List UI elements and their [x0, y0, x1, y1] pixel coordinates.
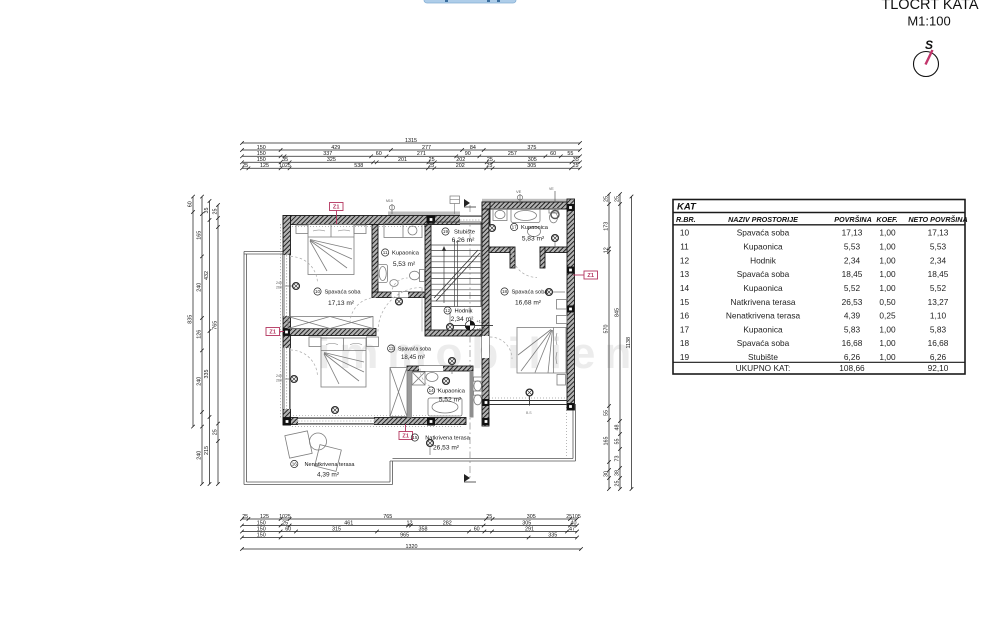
- svg-text:11: 11: [383, 250, 388, 255]
- svg-text:1,00: 1,00: [879, 324, 896, 334]
- svg-text:25: 25: [486, 163, 492, 169]
- svg-text:17,13: 17,13: [842, 228, 863, 238]
- svg-text:VE: VE: [516, 189, 522, 194]
- svg-text:2,34: 2,34: [930, 255, 947, 265]
- svg-text:60: 60: [285, 526, 291, 532]
- svg-text:277: 277: [422, 145, 431, 151]
- svg-text:90: 90: [465, 151, 471, 157]
- svg-text:48: 48: [614, 425, 620, 431]
- svg-text:Z1: Z1: [402, 434, 409, 440]
- svg-text:Hodnik: Hodnik: [750, 255, 777, 265]
- svg-text:10: 10: [315, 289, 321, 294]
- svg-text:1,00: 1,00: [879, 352, 896, 362]
- svg-text:325: 325: [327, 157, 336, 163]
- svg-text:25: 25: [603, 196, 609, 202]
- svg-text:1,00: 1,00: [879, 283, 896, 293]
- svg-text:5,83: 5,83: [930, 324, 947, 334]
- svg-text:173: 173: [603, 222, 609, 231]
- svg-text:1,00: 1,00: [879, 241, 896, 251]
- svg-text:Spavaća soba: Spavaća soba: [324, 290, 361, 296]
- svg-text:Spavaća soba: Spavaća soba: [737, 269, 790, 279]
- svg-text:18: 18: [680, 338, 690, 348]
- svg-text:60: 60: [376, 151, 382, 157]
- svg-text:12: 12: [445, 308, 451, 313]
- svg-text:13: 13: [389, 346, 395, 351]
- svg-text:240: 240: [197, 283, 203, 292]
- svg-text:NAZIV PROSTORIJE: NAZIV PROSTORIJE: [728, 215, 798, 224]
- svg-text:0,50: 0,50: [879, 297, 896, 307]
- svg-text:15: 15: [680, 297, 690, 307]
- svg-text:VE: VE: [549, 187, 554, 191]
- svg-text:6,26: 6,26: [930, 352, 947, 362]
- svg-text:16,68: 16,68: [842, 338, 863, 348]
- svg-text:538: 538: [354, 163, 363, 169]
- svg-text:KAT: KAT: [677, 202, 697, 213]
- svg-text:15: 15: [412, 435, 418, 440]
- svg-text:R.BR.: R.BR.: [676, 215, 696, 224]
- svg-text:6,26: 6,26: [844, 352, 861, 362]
- svg-text:1138: 1138: [626, 337, 632, 349]
- svg-text:Kupaonica: Kupaonica: [392, 251, 420, 257]
- svg-text:432: 432: [204, 271, 210, 280]
- svg-text:17,13 m²: 17,13 m²: [328, 300, 355, 307]
- svg-text:240: 240: [197, 451, 203, 460]
- svg-text:257: 257: [508, 151, 517, 157]
- svg-text:18,45: 18,45: [842, 269, 863, 279]
- svg-text:16: 16: [292, 462, 298, 467]
- svg-text:Kupaonica: Kupaonica: [438, 389, 466, 395]
- svg-text:335: 335: [548, 532, 557, 538]
- svg-text:108,66: 108,66: [839, 363, 865, 373]
- svg-text:16,68 m²: 16,68 m²: [515, 299, 542, 306]
- svg-text:4,39: 4,39: [844, 311, 861, 321]
- svg-text:KOEF.: KOEF.: [876, 215, 897, 224]
- svg-text:B.S: B.S: [526, 411, 532, 415]
- svg-text:4,39 m²: 4,39 m²: [317, 471, 340, 478]
- svg-text:5,52: 5,52: [930, 283, 947, 293]
- svg-text:Hodnik: Hodnik: [454, 309, 472, 315]
- svg-text:38: 38: [614, 470, 620, 476]
- svg-text:84: 84: [470, 145, 476, 151]
- svg-text:Spavaća soba: Spavaća soba: [511, 290, 548, 296]
- svg-text:18,45: 18,45: [928, 269, 949, 279]
- svg-text:5,53: 5,53: [930, 241, 947, 251]
- svg-text:5,52: 5,52: [844, 283, 861, 293]
- svg-text:60: 60: [550, 151, 556, 157]
- svg-text:14: 14: [680, 283, 690, 293]
- svg-text:201: 201: [398, 157, 407, 163]
- svg-text:765: 765: [213, 321, 219, 330]
- svg-text:55: 55: [614, 439, 620, 445]
- svg-text:25: 25: [213, 209, 219, 215]
- svg-text:17,13: 17,13: [928, 228, 949, 238]
- svg-text:358: 358: [419, 526, 428, 532]
- svg-text:12: 12: [680, 255, 690, 265]
- svg-text:26,53: 26,53: [842, 297, 863, 307]
- svg-text:NETO POVRŠINA: NETO POVRŠINA: [908, 215, 967, 224]
- svg-text:25: 25: [614, 481, 620, 487]
- svg-text:25: 25: [242, 514, 248, 520]
- svg-text:13,27: 13,27: [928, 297, 949, 307]
- svg-text:M1:100: M1:100: [907, 14, 950, 29]
- svg-text:965: 965: [400, 532, 409, 538]
- svg-text:25: 25: [614, 196, 620, 202]
- svg-text:92,10: 92,10: [928, 363, 949, 373]
- svg-text:845: 845: [614, 308, 620, 317]
- svg-text:17: 17: [512, 225, 518, 230]
- svg-text:M10: M10: [386, 199, 393, 203]
- svg-text:19: 19: [680, 352, 690, 362]
- svg-text:315: 315: [332, 526, 341, 532]
- svg-text:Natkrivena terasa: Natkrivena terasa: [425, 436, 470, 442]
- svg-text:26,53 m²: 26,53 m²: [433, 444, 460, 451]
- svg-text:150: 150: [257, 145, 266, 151]
- svg-text:1,00: 1,00: [879, 269, 896, 279]
- svg-text:5,52 m²: 5,52 m²: [439, 396, 462, 403]
- svg-text:Nenatkrivena terasa: Nenatkrivena terasa: [304, 462, 355, 468]
- svg-text:Z1: Z1: [333, 205, 340, 211]
- svg-text:125: 125: [260, 163, 269, 169]
- svg-text:25: 25: [573, 163, 579, 169]
- svg-text:260: 260: [276, 379, 282, 383]
- svg-text:240: 240: [276, 374, 282, 378]
- svg-text:260: 260: [276, 286, 282, 290]
- svg-text:282: 282: [443, 520, 452, 526]
- svg-text:165: 165: [603, 437, 609, 446]
- svg-text:Spavaća soba: Spavaća soba: [737, 338, 790, 348]
- svg-text:35: 35: [204, 208, 210, 214]
- svg-text:0,25: 0,25: [879, 311, 896, 321]
- svg-text:Z1: Z1: [269, 330, 276, 336]
- svg-text:1025: 1025: [279, 163, 291, 169]
- svg-text:73: 73: [614, 456, 620, 462]
- svg-text:335: 335: [204, 370, 210, 379]
- svg-text:6,26 m²: 6,26 m²: [452, 237, 475, 244]
- svg-text:10: 10: [680, 228, 690, 238]
- svg-text:13: 13: [680, 269, 690, 279]
- svg-text:765: 765: [383, 514, 392, 520]
- svg-text:1320: 1320: [406, 544, 418, 550]
- svg-text:+1,90: +1,90: [477, 320, 487, 324]
- svg-text:125: 125: [260, 514, 269, 520]
- svg-text:Kupaonica: Kupaonica: [743, 324, 783, 334]
- svg-text:16: 16: [680, 311, 690, 321]
- svg-text:1,00: 1,00: [879, 228, 896, 238]
- svg-text:POVRŠINA: POVRŠINA: [834, 215, 872, 224]
- svg-text:60: 60: [188, 201, 194, 207]
- svg-text:25105: 25105: [566, 514, 581, 520]
- svg-text:375: 375: [527, 145, 536, 151]
- svg-text:5,53 m²: 5,53 m²: [393, 261, 416, 268]
- svg-text:271: 271: [417, 151, 426, 157]
- svg-text:Stubište: Stubište: [454, 230, 475, 236]
- svg-text:1,00: 1,00: [879, 338, 896, 348]
- svg-text:18,45 m²: 18,45 m²: [401, 354, 425, 361]
- svg-text:Nenatkrivena terasa: Nenatkrivena terasa: [726, 311, 801, 321]
- svg-text:126: 126: [197, 330, 203, 339]
- svg-text:Spavaća soba: Spavaća soba: [737, 228, 790, 238]
- svg-text:25: 25: [428, 163, 434, 169]
- svg-text:25: 25: [213, 429, 219, 435]
- svg-text:14: 14: [429, 388, 435, 393]
- svg-text:47: 47: [569, 526, 575, 532]
- svg-text:Spavaća soba: Spavaća soba: [398, 347, 431, 353]
- svg-text:Natkrivena terasa: Natkrivena terasa: [730, 297, 795, 307]
- svg-text:835: 835: [188, 315, 194, 324]
- svg-text:25: 25: [242, 163, 248, 169]
- svg-text:165: 165: [197, 231, 203, 240]
- svg-text:5,83: 5,83: [844, 324, 861, 334]
- svg-text:+0,80: +0,80: [477, 328, 487, 332]
- svg-text:2,34: 2,34: [844, 255, 861, 265]
- svg-text:150: 150: [257, 532, 266, 538]
- svg-text:25: 25: [486, 514, 492, 520]
- svg-text:1025: 1025: [279, 514, 291, 520]
- svg-text:18: 18: [502, 289, 508, 294]
- svg-text:55: 55: [603, 410, 609, 416]
- svg-text:202: 202: [456, 163, 465, 169]
- svg-text:429: 429: [331, 145, 340, 151]
- svg-text:305: 305: [527, 514, 536, 520]
- svg-text:Stubište: Stubište: [748, 352, 778, 362]
- svg-text:TLOCRT KATA: TLOCRT KATA: [881, 0, 979, 13]
- svg-text:Kupaonica: Kupaonica: [521, 225, 549, 231]
- svg-text:5,53: 5,53: [844, 241, 861, 251]
- svg-text:1315: 1315: [405, 138, 417, 144]
- svg-text:Z1: Z1: [587, 273, 594, 279]
- svg-text:461: 461: [344, 520, 353, 526]
- svg-text:17: 17: [680, 324, 690, 334]
- svg-text:305: 305: [527, 163, 536, 169]
- svg-text:19: 19: [443, 229, 449, 234]
- svg-text:1,10: 1,10: [930, 311, 947, 321]
- svg-text:291: 291: [525, 526, 534, 532]
- svg-text:1,00: 1,00: [879, 255, 896, 265]
- svg-text:Kupaonica: Kupaonica: [743, 241, 783, 251]
- svg-text:11: 11: [680, 241, 689, 251]
- svg-text:12: 12: [603, 247, 609, 253]
- svg-text:215: 215: [204, 446, 210, 455]
- svg-text:UKUPNO KAT:: UKUPNO KAT:: [736, 363, 791, 373]
- svg-text:5,83 m²: 5,83 m²: [522, 235, 545, 242]
- svg-text:Kupaonica: Kupaonica: [743, 283, 783, 293]
- svg-text:12: 12: [407, 520, 413, 526]
- svg-text:240: 240: [276, 281, 282, 285]
- svg-text:570: 570: [603, 325, 609, 334]
- svg-text:60: 60: [474, 526, 480, 532]
- svg-text:30: 30: [603, 471, 609, 477]
- svg-text:16,68: 16,68: [928, 338, 949, 348]
- svg-text:240: 240: [197, 377, 203, 386]
- svg-text:2,34 m²: 2,34 m²: [451, 316, 474, 323]
